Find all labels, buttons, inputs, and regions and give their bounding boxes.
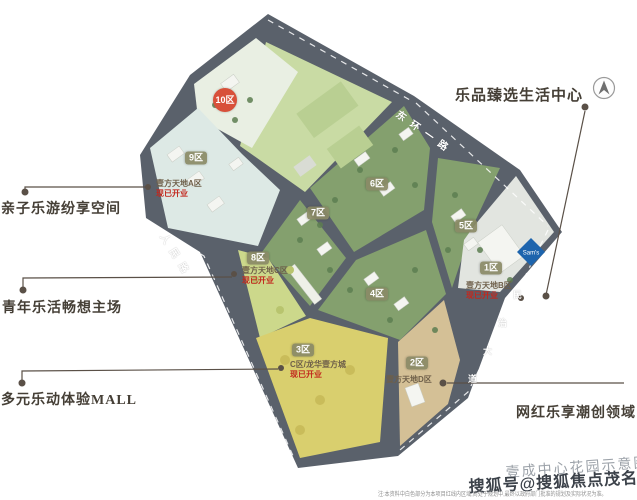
- poi-name: 壹方天地D区: [386, 375, 432, 385]
- poi-label-yifang-b: 壹方天地B区 现已开业: [466, 281, 512, 301]
- district-badge-10: 10区: [213, 88, 237, 112]
- poi-name: 壹方天地C区: [242, 266, 288, 276]
- north-arrow-icon: [594, 78, 615, 99]
- site-map: Sam's: [0, 0, 637, 500]
- district-badge-4: 4区: [366, 288, 388, 301]
- poi-name: 壹方天地B区: [466, 281, 512, 291]
- road-char-minzhi-1: 民: [513, 288, 522, 301]
- poi-status: 现已开业: [156, 189, 202, 199]
- callout-life-center: 乐品臻选生活中心: [455, 84, 583, 105]
- callout-mall: 多元乐动体验MALL: [1, 389, 137, 409]
- poi-label-yifangcheng: C区/龙华壹方城 现已开业: [290, 360, 346, 380]
- site-plan-page: Sam's 10区 9区 6区 7区: [0, 0, 637, 500]
- poi-status: 现已开业: [290, 370, 346, 380]
- district-badge-6: 6区: [366, 178, 388, 191]
- district-badge-9: 9区: [185, 152, 207, 165]
- disclaimer-note: 注:本资料中白色部分为本项目红线内区域,尚处于规划中,最终以政府部门批准的规划及…: [378, 489, 607, 498]
- poi-name: 壹方天地A区: [156, 179, 202, 189]
- poi-name: C区/龙华壹方城: [290, 360, 346, 370]
- district-badge-8: 8区: [247, 252, 269, 265]
- district-badge-5: 5区: [455, 220, 477, 233]
- poi-label-yifang-c: 壹方天地C区 现已开业: [242, 266, 288, 286]
- poi-label-yifang-a: 壹方天地A区 现已开业: [156, 179, 202, 199]
- district-badge-7: 7区: [307, 207, 329, 220]
- district-badge-1: 1区: [480, 262, 502, 275]
- sams-club-text: Sam's: [523, 251, 539, 257]
- road-char-minzhi-3: 大: [483, 344, 492, 357]
- road-char-minzhi-2: 治: [498, 316, 507, 329]
- district-area-3: [256, 318, 388, 458]
- district-badge-2: 2区: [406, 357, 428, 370]
- district-badge-3: 3区: [292, 344, 314, 357]
- callout-youth-ground: 青年乐活畅想主场: [2, 297, 122, 317]
- poi-status: 现已开业: [466, 291, 512, 301]
- callout-family-space: 亲子乐游纷享空间: [1, 198, 121, 218]
- road-char-minzhi-4: 道: [468, 372, 477, 385]
- poi-status: 现已开业: [242, 276, 288, 286]
- callout-trend-area: 网红乐享潮创领域: [516, 402, 636, 422]
- poi-label-yifang-d: 壹方天地D区: [386, 375, 432, 385]
